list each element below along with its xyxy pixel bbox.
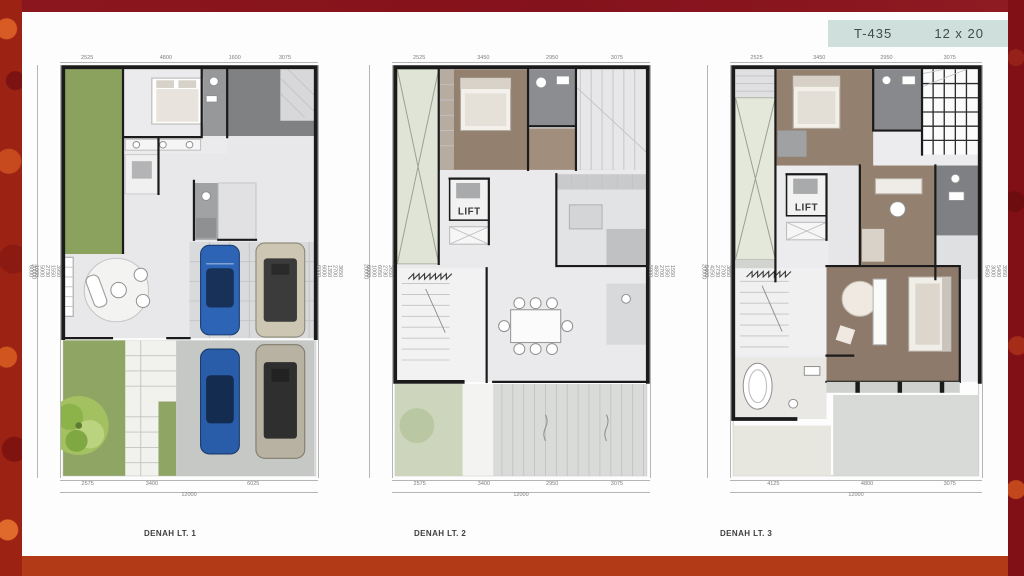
plan2-drawing: LIFT xyxy=(393,65,650,478)
frame-border-right xyxy=(1008,0,1024,576)
garden-strip xyxy=(64,68,123,254)
frame-border-top xyxy=(22,0,1008,12)
lift-box: LIFT xyxy=(787,174,827,216)
void-area xyxy=(397,69,438,263)
plan3-total-width: 12000 xyxy=(730,492,982,504)
sofa-icon xyxy=(875,179,922,194)
plan1-total-width: 12000 xyxy=(60,492,318,504)
powder-room xyxy=(606,284,646,345)
bed-icon xyxy=(793,76,840,128)
sink-icon xyxy=(206,96,217,103)
plan2-total-width: 12000 xyxy=(392,492,650,504)
sink-icon xyxy=(556,76,569,85)
plan1-dims-bottom: 2575 3400 6025 xyxy=(60,480,318,492)
plan2-dims-top: 2525 3450 2950 3075 xyxy=(392,50,650,63)
floor-plan-2: 2525 3450 2950 3075 20000 2650 2730 6050… xyxy=(360,50,674,504)
plan1-dims-top: 2525 4800 1600 3075 xyxy=(60,50,318,63)
round-rug xyxy=(842,281,878,316)
plan2-dims-left: 2650 2730 6050 1000 6000 xyxy=(370,65,393,478)
dim-label: 5450 xyxy=(983,65,989,478)
dim-label: 12000 xyxy=(848,493,863,499)
dim-label: 3400 xyxy=(115,481,188,492)
floor-plan-1: 2525 4800 1600 3075 20000 3950 1550 2730… xyxy=(28,50,342,504)
bed-icon xyxy=(152,78,203,124)
dim-label: 3400 xyxy=(447,481,520,492)
dim-label: 3950 xyxy=(1000,65,1006,478)
plan3-dims-bottom: 4125 4800 3075 xyxy=(730,480,982,492)
plan3-dims-top: 2525 3450 2950 3075 xyxy=(730,50,982,63)
toilet-icon xyxy=(202,192,211,201)
dim-label: 2525 xyxy=(392,50,446,62)
dim-label: 3075 xyxy=(917,50,982,62)
sink-icon xyxy=(804,367,820,376)
dim-label: 2950 xyxy=(520,481,583,492)
plan-sheet: T-435 12 x 20 2525 4800 1600 3075 20000 … xyxy=(22,10,1008,556)
dim-label: 2575 xyxy=(392,481,447,492)
dim-label: 3075 xyxy=(252,50,318,62)
plan3-drawing: LIFT xyxy=(731,65,982,478)
chair-icon xyxy=(136,294,149,307)
dim-label: 6000 xyxy=(315,65,321,478)
dim-label: 6000 xyxy=(365,65,371,478)
toilet-icon xyxy=(536,77,547,88)
dim-label: 12000 xyxy=(181,493,196,499)
dim-label: 4800 xyxy=(114,50,217,62)
trellis-roof xyxy=(922,69,979,154)
void-area xyxy=(735,98,775,260)
dim-label: 5400 xyxy=(703,65,709,478)
brochure-page: T-435 12 x 20 2525 4800 1600 3075 20000 … xyxy=(0,0,1024,576)
suv-icon xyxy=(256,345,305,459)
dresser xyxy=(778,131,807,157)
plan-3-caption: DENAH LT. 3 xyxy=(720,529,772,538)
living-room xyxy=(84,258,149,321)
dim-label: 1600 xyxy=(217,50,251,62)
plan1-dims-right: 3650 2700 1350 6000 6000 xyxy=(318,65,342,478)
plan-1-caption: DENAH LT. 1 xyxy=(144,529,196,538)
dim-label: 2525 xyxy=(730,50,783,62)
flat-roof-right xyxy=(833,395,978,476)
kitchen xyxy=(556,174,646,266)
dim-label: 12000 xyxy=(513,493,528,499)
suv-icon xyxy=(256,243,305,337)
plan1-drawing xyxy=(61,65,318,478)
car-blue-icon xyxy=(201,245,240,335)
stairs-icon xyxy=(733,268,826,355)
dim-label: 5000 xyxy=(647,65,653,478)
bench-icon xyxy=(873,279,886,345)
frame-border-bottom xyxy=(22,556,1008,576)
toilet-icon xyxy=(882,76,891,85)
title-badge: T-435 12 x 20 xyxy=(828,20,1008,47)
flat-roof-left xyxy=(733,426,831,476)
plan2-dims-bottom: 2575 3400 2950 3075 xyxy=(392,480,650,492)
dim-label: 4800 xyxy=(817,481,918,492)
desk-icon xyxy=(862,229,884,262)
plan3-dims-right: 3950 5400 3000 5450 xyxy=(982,65,1006,478)
dim-label: 5400 xyxy=(994,65,1000,478)
master-bedroom xyxy=(827,266,960,382)
car-blue-icon xyxy=(201,349,240,454)
frame-border-left xyxy=(0,0,22,576)
plan1-dims-left: 3950 1550 2730 5000 1000 6000 xyxy=(38,65,61,478)
terrace-white xyxy=(463,384,493,476)
dim-label: 3075 xyxy=(584,50,650,62)
pantry xyxy=(606,229,646,266)
lift-label: LIFT xyxy=(458,207,481,218)
dim-label: 6025 xyxy=(188,481,318,492)
balcony-strip xyxy=(827,382,960,393)
master-bath xyxy=(733,358,826,419)
coffee-table-icon xyxy=(111,282,127,297)
sitting-room xyxy=(860,166,936,267)
sink-icon xyxy=(902,76,915,85)
balcony-deck xyxy=(493,384,647,476)
corridor xyxy=(829,166,860,267)
lift-label: LIFT xyxy=(795,202,818,213)
plan3-dims-left: 3850 2700 2730 4250 5400 xyxy=(708,65,731,478)
toilet-icon xyxy=(789,399,798,408)
lot-size: 12 x 20 xyxy=(934,26,984,41)
dim-label: 3450 xyxy=(446,50,520,62)
dim-label: 3000 xyxy=(989,65,995,478)
dim-label: 2950 xyxy=(520,50,583,62)
dim-label: 6000 xyxy=(27,65,33,478)
dim-label: 3075 xyxy=(584,481,650,492)
dim-label: 4125 xyxy=(730,481,817,492)
stairs-icon xyxy=(395,268,486,382)
chair-icon xyxy=(134,268,147,281)
table-icon xyxy=(890,202,906,217)
dim-label: 2950 xyxy=(855,50,917,62)
dim-label: 2525 xyxy=(60,50,114,62)
lift-box: LIFT xyxy=(450,179,489,221)
type-code: T-435 xyxy=(854,26,892,41)
floor-plan-3: 2525 3450 2950 3075 20000 3850 2700 2730… xyxy=(698,50,1006,504)
toilet-icon xyxy=(209,77,218,86)
plan-2-caption: DENAH LT. 2 xyxy=(414,529,466,538)
dim-label: 3075 xyxy=(917,481,982,492)
bed-icon xyxy=(461,78,511,130)
dim-label: 2575 xyxy=(60,481,115,492)
plan2-dims-right: 1550 1350 2700 4850 5000 xyxy=(650,65,674,478)
dim-label: 3450 xyxy=(783,50,855,62)
